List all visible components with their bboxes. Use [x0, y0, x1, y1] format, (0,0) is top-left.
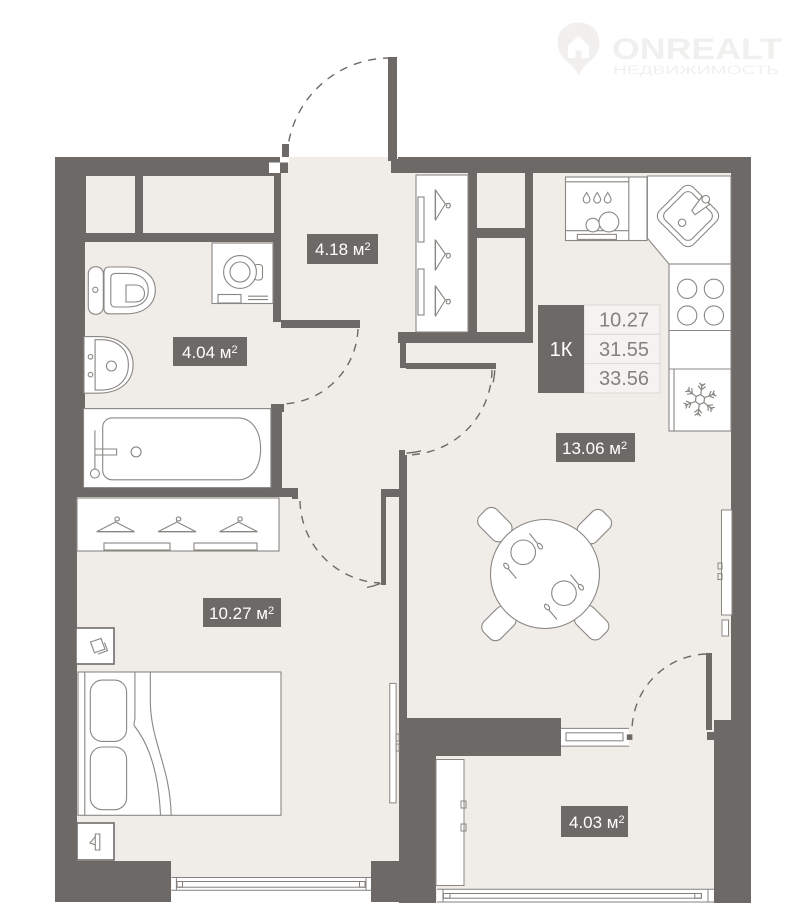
svg-text:1К: 1К [550, 339, 573, 361]
svg-text:10.27 м2: 10.27 м2 [209, 604, 274, 623]
svg-text:4.04 м2: 4.04 м2 [182, 343, 238, 362]
svg-text:4.18 м2: 4.18 м2 [315, 240, 371, 259]
svg-text:31.55: 31.55 [599, 339, 649, 361]
svg-text:ONREALT: ONREALT [612, 33, 782, 66]
svg-text:33.56: 33.56 [599, 368, 649, 390]
svg-text:13.06 м2: 13.06 м2 [562, 439, 627, 458]
svg-text:НЕДВИЖИМОСТЬ: НЕДВИЖИМОСТЬ [613, 65, 779, 77]
svg-text:4.03 м2: 4.03 м2 [569, 813, 625, 832]
svg-text:10.27: 10.27 [599, 310, 649, 332]
